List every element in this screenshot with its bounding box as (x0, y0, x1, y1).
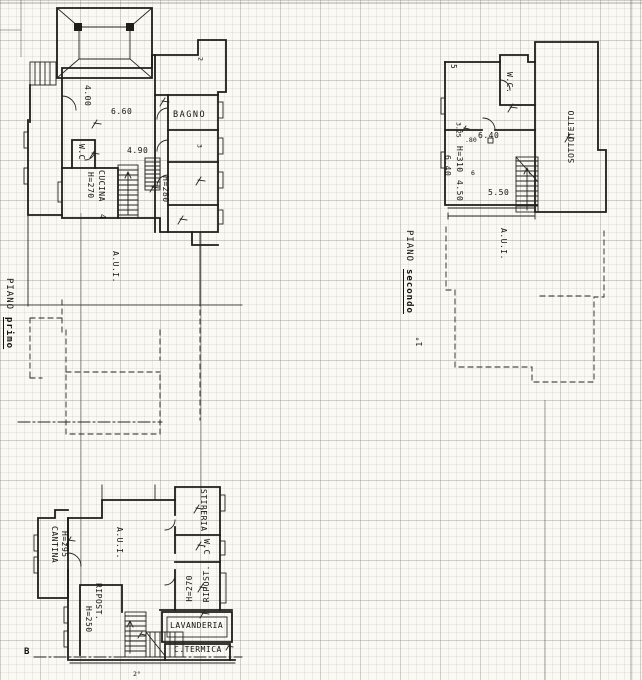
floor-title-piano-primo: PIANOprimo (4, 278, 13, 349)
floor-title-word: PIANO (404, 230, 414, 262)
room-label-ripost-left: RIPOST. (94, 583, 102, 620)
dim-6-40: 6.40 (478, 132, 499, 140)
dim-h310: H=310 (455, 146, 463, 173)
room-number-3: 3 (196, 144, 203, 148)
area-label-aui-f1: A.U.I. (111, 251, 119, 283)
dim-4-90: 4.90 (127, 147, 148, 155)
dim-6-40-vertical: 6.40 (443, 155, 451, 176)
room-label-wc-basement: W.C (202, 539, 210, 555)
room-label-stireria: STIRERIA (199, 489, 207, 532)
scanned-floor-plan-sheet: 4.00 6.60 4.90 BAGNO 2 3 W.C CUCINA H=27… (0, 0, 642, 680)
room-label-ripost-right: RIPOST. (203, 565, 211, 602)
dim-h280: H=280 (161, 176, 169, 203)
room-label-cantina: CANTINA (50, 526, 58, 563)
dim-h295: H=295 (60, 531, 68, 558)
floor-title-piano-secondo: PIANOsecondo (404, 230, 413, 314)
room-number-2: 2 (197, 57, 204, 61)
floor-title-name: primo (4, 317, 14, 349)
room-label-bagno: BAGNO (173, 111, 206, 120)
floor-plan-piano-secondo (400, 20, 642, 430)
dim-3-25: 3.25 (455, 122, 462, 138)
dim-h250: H=250 (84, 606, 92, 633)
floor-plan-piano-primo (0, 0, 340, 460)
dim-6-60: 6.60 (111, 108, 132, 116)
dim-0-80: .80 (465, 137, 477, 144)
bottom-mark-2: 2° (133, 671, 141, 678)
room-number-6: 6 (471, 170, 475, 177)
room-label-lavanderia: LAVANDERIA (170, 622, 223, 630)
room-number-4: 4 (98, 214, 106, 219)
dim-h270-cucina: H=270 (86, 172, 94, 199)
dim-4-50: 4.50 (455, 180, 463, 201)
room-number-5: 5 (449, 64, 457, 69)
room-label-ctermica: C.TERMICA (174, 646, 222, 654)
room-label-cucina: CUCINA (97, 170, 105, 202)
dim-5-50: 5.50 (488, 189, 509, 197)
section-marker-b: B (24, 648, 30, 657)
room-label-sottotetto: SOTTOTETTO (568, 110, 576, 163)
floor-title-name: secondo (404, 269, 414, 314)
dim-h270-ripost: H=270 (186, 575, 194, 602)
floor-title-word: PIANO (4, 278, 14, 310)
room-label-wc-f1: W.C (77, 144, 85, 160)
room-label-wc-f2: W.C. (505, 72, 513, 93)
area-label-aui-f2: A.U.I. (499, 228, 507, 260)
dim-4-00: 4.00 (83, 85, 91, 106)
scale-mark-1: 1° (416, 336, 424, 347)
area-label-aui-basement: A.U.I. (115, 527, 123, 559)
